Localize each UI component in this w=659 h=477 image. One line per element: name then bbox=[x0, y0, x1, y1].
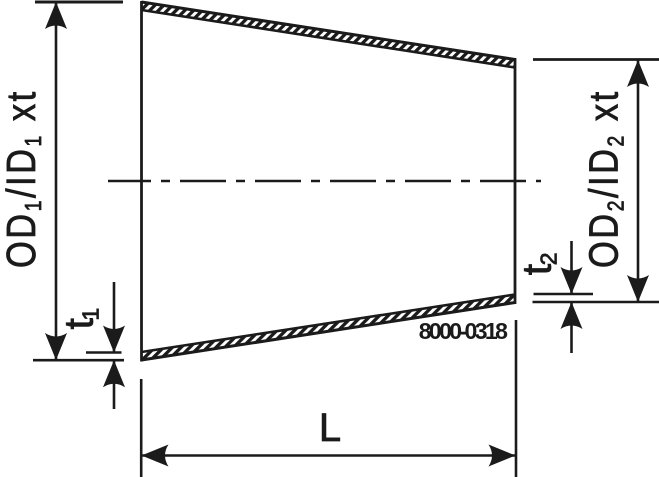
svg-text:OD1/ID1 xt: OD1/ID1 xt bbox=[0, 89, 46, 268]
svg-text:L: L bbox=[319, 406, 341, 450]
svg-text:8000-0318: 8000-0318 bbox=[419, 318, 508, 344]
svg-text:OD2/ID2 xt: OD2/ID2 xt bbox=[582, 89, 629, 268]
